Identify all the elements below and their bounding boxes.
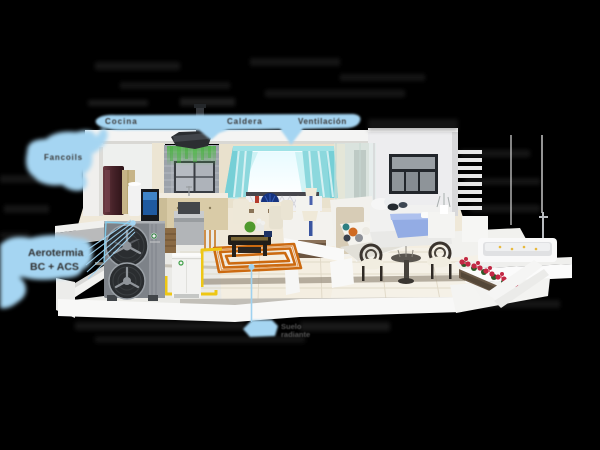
svg-text:Cocina: Cocina: [105, 117, 138, 126]
svg-text:Aerotermia: Aerotermia: [28, 247, 84, 259]
svg-text:Fancoils: Fancoils: [44, 153, 83, 162]
svg-text:Ventilación: Ventilación: [298, 117, 347, 126]
svg-text:Caldera: Caldera: [227, 117, 263, 126]
svg-text:BC + ACS: BC + ACS: [30, 261, 79, 273]
svg-text:radiante: radiante: [281, 330, 310, 339]
